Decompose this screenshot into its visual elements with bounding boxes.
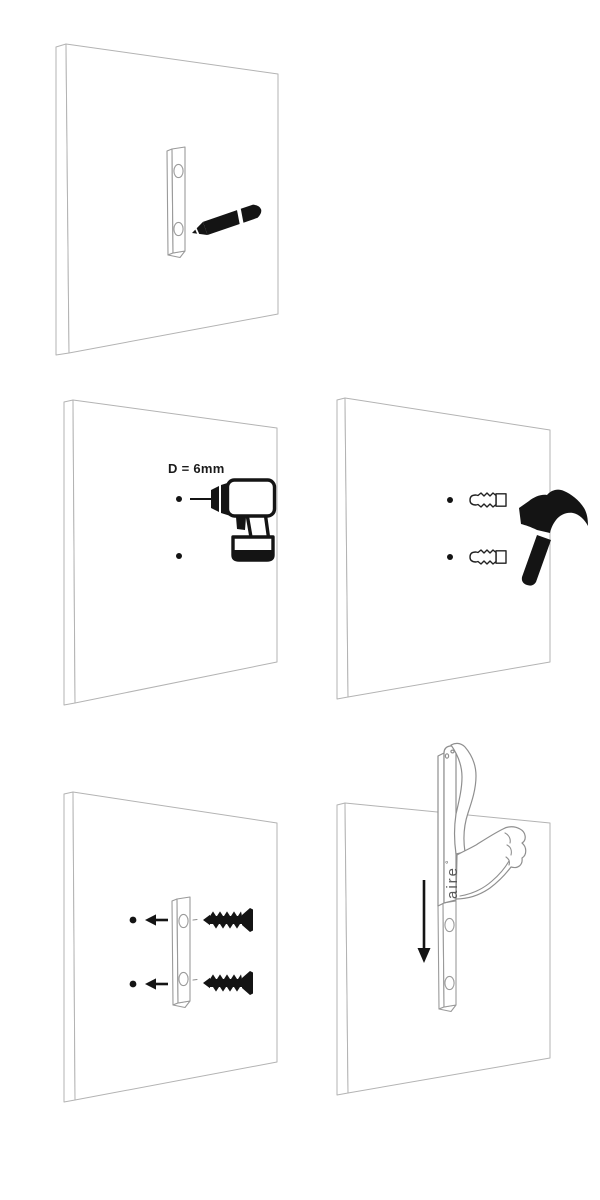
step-1-mark-panel (56, 44, 278, 355)
mounting-bracket (167, 147, 185, 258)
instruction-diagram: D = 6mm (0, 0, 600, 1200)
wall-board-front (345, 398, 550, 697)
wall-plug-icon (470, 493, 506, 507)
hole-bottom (130, 981, 137, 988)
hole-mark-top (176, 496, 182, 502)
mounting-bracket (438, 901, 456, 1012)
step-2-drill-panel: D = 6mm (64, 400, 277, 705)
mounting-bracket (172, 897, 190, 1008)
hole-bottom (447, 554, 453, 560)
step-4-screw-panel (64, 792, 277, 1102)
wall-plug-icon (470, 550, 506, 564)
step-3-anchor-panel (337, 398, 588, 699)
hole-mark-bottom (176, 553, 182, 559)
drill-diameter-label: D = 6mm (168, 461, 225, 476)
step-5-hang-panel: aire° (337, 743, 550, 1095)
hole-top (447, 497, 453, 503)
product-pin (445, 754, 448, 758)
hole-top (130, 917, 137, 924)
product-pin (451, 750, 454, 753)
instruction-sheet: D = 6mm (0, 0, 600, 1200)
